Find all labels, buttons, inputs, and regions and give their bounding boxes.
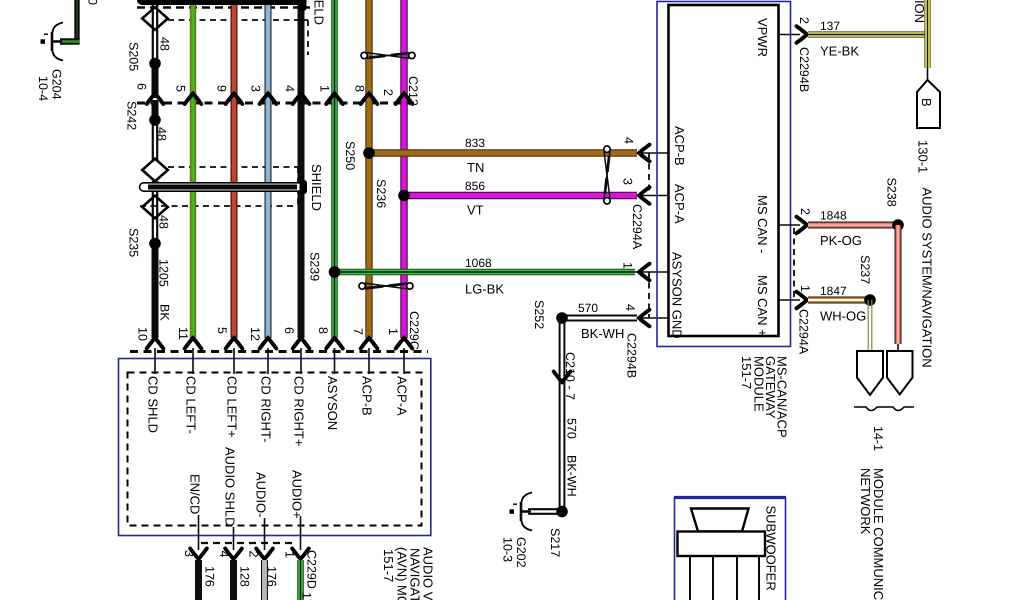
svg-text:3: 3 xyxy=(621,178,635,185)
svg-text:S239: S239 xyxy=(308,252,322,281)
svg-text:5: 5 xyxy=(174,85,188,92)
svg-text:2: 2 xyxy=(381,89,395,96)
svg-text:8: 8 xyxy=(353,85,367,92)
svg-text:AUDIO-: AUDIO- xyxy=(254,472,269,518)
svg-text:C2294B: C2294B xyxy=(797,47,811,92)
svg-text:2: 2 xyxy=(247,551,261,558)
svg-text:AUDIO SYSTEM/NAVIGATION: AUDIO SYSTEM/NAVIGATION xyxy=(920,188,935,368)
svg-text:AUDIO+: AUDIO+ xyxy=(290,470,305,519)
svg-text:C2294A: C2294A xyxy=(797,309,811,355)
svg-text:S235: S235 xyxy=(127,228,141,257)
svg-text:9: 9 xyxy=(215,85,229,92)
svg-text:570: 570 xyxy=(578,301,598,315)
svg-text:B: B xyxy=(919,98,934,107)
svg-text:151-7: 151-7 xyxy=(739,356,754,389)
svg-text:S236: S236 xyxy=(374,179,388,208)
svg-text:856: 856 xyxy=(465,179,485,193)
svg-text:TN: TN xyxy=(467,160,484,175)
svg-text:C229D: C229D xyxy=(305,550,319,589)
svg-text:6: 6 xyxy=(135,83,149,90)
svg-text:176: 176 xyxy=(203,566,217,587)
svg-text:48: 48 xyxy=(157,215,171,229)
svg-text:176: 176 xyxy=(265,566,279,587)
svg-text:TION: TION xyxy=(912,0,927,23)
svg-text:ACP-A: ACP-A xyxy=(672,184,687,224)
svg-text:BK-WH: BK-WH xyxy=(565,455,579,497)
svg-text:1205: 1205 xyxy=(157,259,171,287)
svg-text:0: 0 xyxy=(86,0,100,5)
svg-text:CD RIGHT-: CD RIGHT- xyxy=(259,376,274,442)
svg-text:S238: S238 xyxy=(885,178,899,207)
svg-text:ASYSON GND: ASYSON GND xyxy=(670,252,685,339)
svg-text:1068: 1068 xyxy=(465,256,492,270)
svg-text:48: 48 xyxy=(158,37,172,51)
svg-text:5: 5 xyxy=(215,327,229,334)
svg-text:LG-BK: LG-BK xyxy=(465,282,504,297)
svg-text:S250: S250 xyxy=(343,141,357,170)
svg-text:VT: VT xyxy=(467,203,484,218)
svg-text:SHIELD: SHIELD xyxy=(309,164,324,211)
svg-text:CD RIGHT+: CD RIGHT+ xyxy=(292,376,307,446)
svg-text:G202: G202 xyxy=(514,537,528,568)
svg-text:4: 4 xyxy=(622,137,636,144)
svg-text:CD LEFT+: CD LEFT+ xyxy=(225,376,240,438)
svg-text:WH-OG: WH-OG xyxy=(820,309,866,324)
svg-text:1: 1 xyxy=(621,262,635,269)
svg-text:1: 1 xyxy=(318,85,332,92)
svg-text:1: 1 xyxy=(798,285,812,292)
svg-text:CD LEFT-: CD LEFT- xyxy=(184,376,199,434)
svg-text:151-7: 151-7 xyxy=(381,549,396,582)
svg-text:CD SHLD: CD SHLD xyxy=(146,376,161,433)
svg-text:4: 4 xyxy=(623,304,637,311)
svg-text:10-3: 10-3 xyxy=(501,537,515,562)
svg-text:SUBWOOFER: SUBWOOFER xyxy=(763,506,778,591)
svg-text:YE-BK: YE-BK xyxy=(820,44,859,59)
svg-text:ACP-B: ACP-B xyxy=(360,376,375,416)
svg-text:ACP-B: ACP-B xyxy=(672,126,687,166)
svg-text:1: 1 xyxy=(386,328,400,335)
svg-text:10-4: 10-4 xyxy=(36,76,50,101)
svg-text:6: 6 xyxy=(282,327,296,334)
svg-text:S237: S237 xyxy=(858,255,872,284)
svg-text:AUDIO SHLD: AUDIO SHLD xyxy=(223,447,238,526)
svg-text:NETWORK: NETWORK xyxy=(858,468,873,535)
svg-text:4: 4 xyxy=(217,551,231,558)
svg-text:4: 4 xyxy=(283,85,297,92)
svg-text:833: 833 xyxy=(465,136,485,150)
svg-text:VPWR: VPWR xyxy=(755,18,770,57)
svg-text:2: 2 xyxy=(797,17,811,24)
svg-text:BK-WH: BK-WH xyxy=(581,326,624,341)
svg-text:G204: G204 xyxy=(50,69,64,100)
svg-text:S217: S217 xyxy=(548,528,562,557)
svg-text:570: 570 xyxy=(565,418,579,439)
svg-text:C210 - 7: C210 - 7 xyxy=(563,352,577,400)
svg-text:MS CAN -: MS CAN - xyxy=(755,195,770,254)
svg-text:7: 7 xyxy=(351,328,365,335)
svg-text:8: 8 xyxy=(316,327,330,334)
svg-text:137: 137 xyxy=(820,19,840,33)
svg-text:130-1: 130-1 xyxy=(916,140,931,173)
svg-text:S242: S242 xyxy=(125,101,139,130)
svg-text:11: 11 xyxy=(176,327,190,340)
svg-text:1847: 1847 xyxy=(820,284,847,298)
svg-text:1848: 1848 xyxy=(820,209,847,223)
svg-text:3: 3 xyxy=(249,85,263,92)
svg-text:C212: C212 xyxy=(406,76,420,106)
svg-text:SHIELD: SHIELD xyxy=(312,0,327,25)
svg-text:14-1: 14-1 xyxy=(871,426,885,451)
svg-text:10: 10 xyxy=(136,327,150,341)
svg-text:ACP-A: ACP-A xyxy=(395,376,410,416)
svg-text:MS CAN +: MS CAN + xyxy=(755,275,770,337)
svg-text:C2294B: C2294B xyxy=(625,333,639,378)
svg-text:BK: BK xyxy=(158,304,172,321)
svg-text:S205: S205 xyxy=(127,42,141,71)
svg-text:PK-OG: PK-OG xyxy=(820,233,862,248)
svg-text:S252: S252 xyxy=(532,300,546,329)
svg-text:17: 17 xyxy=(300,592,314,600)
svg-text:12: 12 xyxy=(248,327,262,341)
svg-text:C229C: C229C xyxy=(407,311,421,350)
svg-text:128: 128 xyxy=(238,566,252,587)
svg-text:1: 1 xyxy=(283,551,297,558)
svg-text:48: 48 xyxy=(155,127,169,141)
svg-text:2: 2 xyxy=(798,208,812,215)
svg-text:EN/CD: EN/CD xyxy=(188,474,203,514)
svg-text:3: 3 xyxy=(182,550,196,557)
svg-text:ASYSON: ASYSON xyxy=(325,376,340,430)
svg-text:C2294A: C2294A xyxy=(630,204,644,250)
